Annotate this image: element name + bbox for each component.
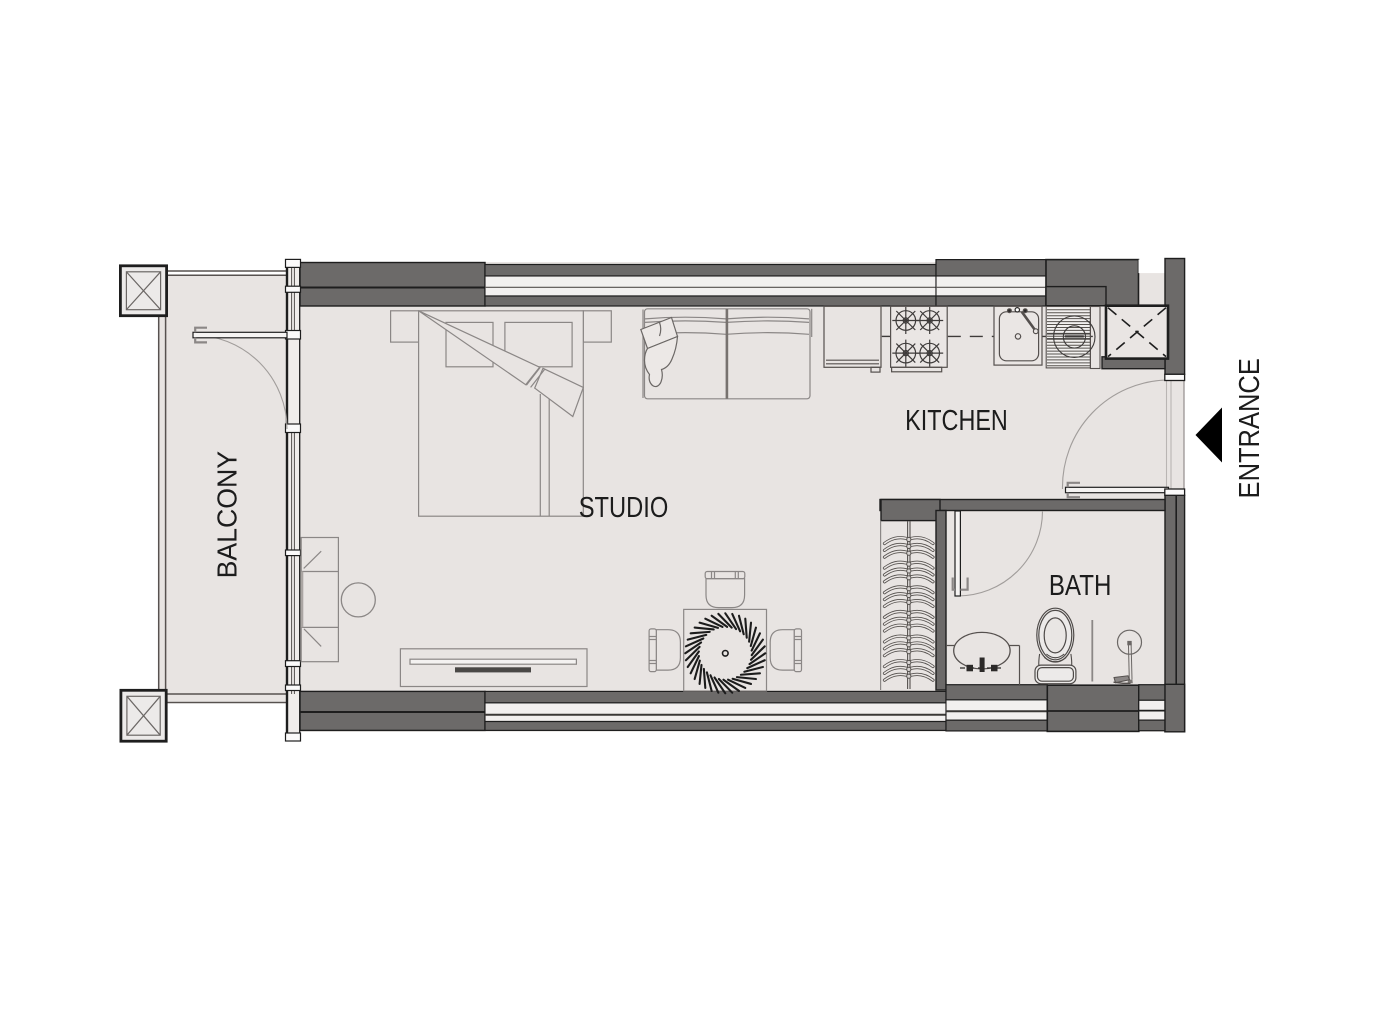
svg-text:STUDIO: STUDIO xyxy=(579,491,669,524)
svg-text:BATH: BATH xyxy=(1049,569,1112,601)
svg-text:BALCONY: BALCONY xyxy=(211,451,242,578)
svg-text:KITCHEN: KITCHEN xyxy=(905,404,1008,437)
svg-text:ENTRANCE: ENTRANCE xyxy=(1232,358,1265,498)
